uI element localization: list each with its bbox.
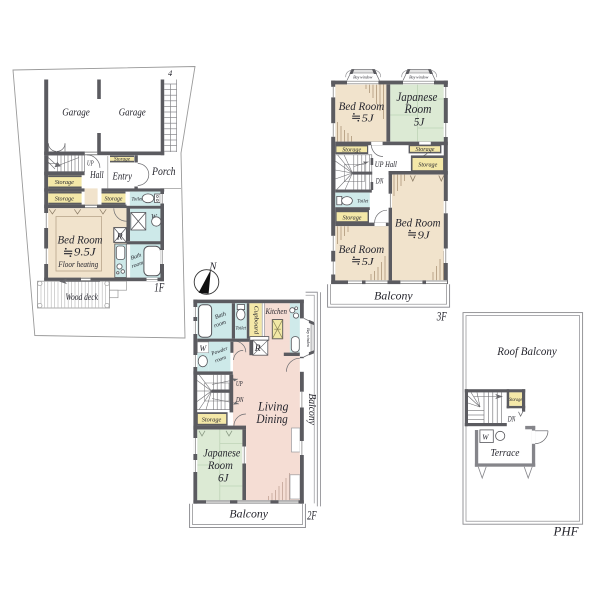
svg-text:Storage: Storage — [416, 146, 435, 153]
svg-text:Wood deck: Wood deck — [65, 293, 98, 303]
svg-text:Entry: Entry — [112, 171, 132, 183]
svg-text:2F: 2F — [307, 509, 317, 523]
svg-text:Storage: Storage — [343, 215, 362, 222]
svg-text:Bed Room: Bed Room — [395, 217, 441, 229]
svg-text:5J: 5J — [414, 114, 425, 128]
svg-text:Bed Room: Bed Room — [58, 235, 103, 247]
svg-text:DN: DN — [375, 177, 384, 186]
svg-text:Garage: Garage — [119, 107, 146, 118]
svg-text:Toilet: Toilet — [235, 326, 246, 332]
svg-text:Storage: Storage — [114, 157, 131, 163]
svg-text:Bed Room: Bed Room — [339, 101, 385, 113]
svg-text:9J: 9J — [418, 229, 431, 241]
svg-text:Garage: Garage — [62, 107, 90, 118]
svg-text:Storage: Storage — [342, 147, 361, 154]
svg-text:Toilet: Toilet — [132, 197, 143, 203]
svg-text:N: N — [209, 261, 218, 272]
svg-text:UP: UP — [236, 379, 243, 388]
svg-text:PHF: PHF — [552, 524, 578, 538]
svg-text:5J: 5J — [362, 256, 375, 268]
svg-text:DN: DN — [507, 414, 516, 423]
svg-text:Balcony: Balcony — [374, 291, 413, 303]
svg-text:Balcony: Balcony — [306, 393, 317, 425]
svg-text:Dining: Dining — [255, 411, 288, 426]
svg-text:Toilet: Toilet — [357, 198, 368, 204]
svg-text:UP Hall: UP Hall — [375, 160, 398, 169]
svg-text:1F: 1F — [154, 281, 164, 295]
svg-text:R: R — [116, 233, 123, 243]
svg-text:UP: UP — [87, 158, 94, 167]
svg-text:DN: DN — [235, 395, 244, 404]
svg-text:Bay window: Bay window — [306, 328, 311, 347]
svg-text:3F: 3F — [436, 310, 447, 324]
svg-text:W: W — [482, 433, 489, 442]
svg-text:Porch: Porch — [151, 166, 176, 178]
svg-text:Room: Room — [207, 458, 233, 472]
svg-text:6J: 6J — [218, 472, 229, 484]
svg-text:Storage: Storage — [105, 195, 123, 202]
svg-text:Balcony: Balcony — [229, 508, 268, 520]
svg-text:Bay window: Bay window — [409, 75, 428, 80]
svg-text:Bed Room: Bed Room — [339, 244, 385, 256]
svg-text:Cupboard: Cupboard — [253, 306, 259, 336]
svg-text:R: R — [254, 344, 261, 354]
svg-text:Floor heating: Floor heating — [57, 260, 98, 269]
svg-text:Terrace: Terrace — [491, 448, 521, 459]
svg-text:Storage: Storage — [202, 416, 222, 423]
svg-text:5J: 5J — [362, 113, 375, 125]
svg-text:Storage: Storage — [55, 196, 74, 203]
svg-text:Storage: Storage — [509, 398, 523, 403]
svg-text:Storage: Storage — [55, 179, 74, 186]
svg-text:Hall: Hall — [89, 170, 103, 181]
svg-text:Bay window: Bay window — [353, 75, 372, 80]
svg-text:Kitchen: Kitchen — [265, 306, 288, 316]
svg-text:Roof Balcony: Roof Balcony — [496, 346, 557, 358]
svg-text:9.5J: 9.5J — [74, 247, 96, 259]
svg-text:Storage: Storage — [418, 161, 437, 168]
